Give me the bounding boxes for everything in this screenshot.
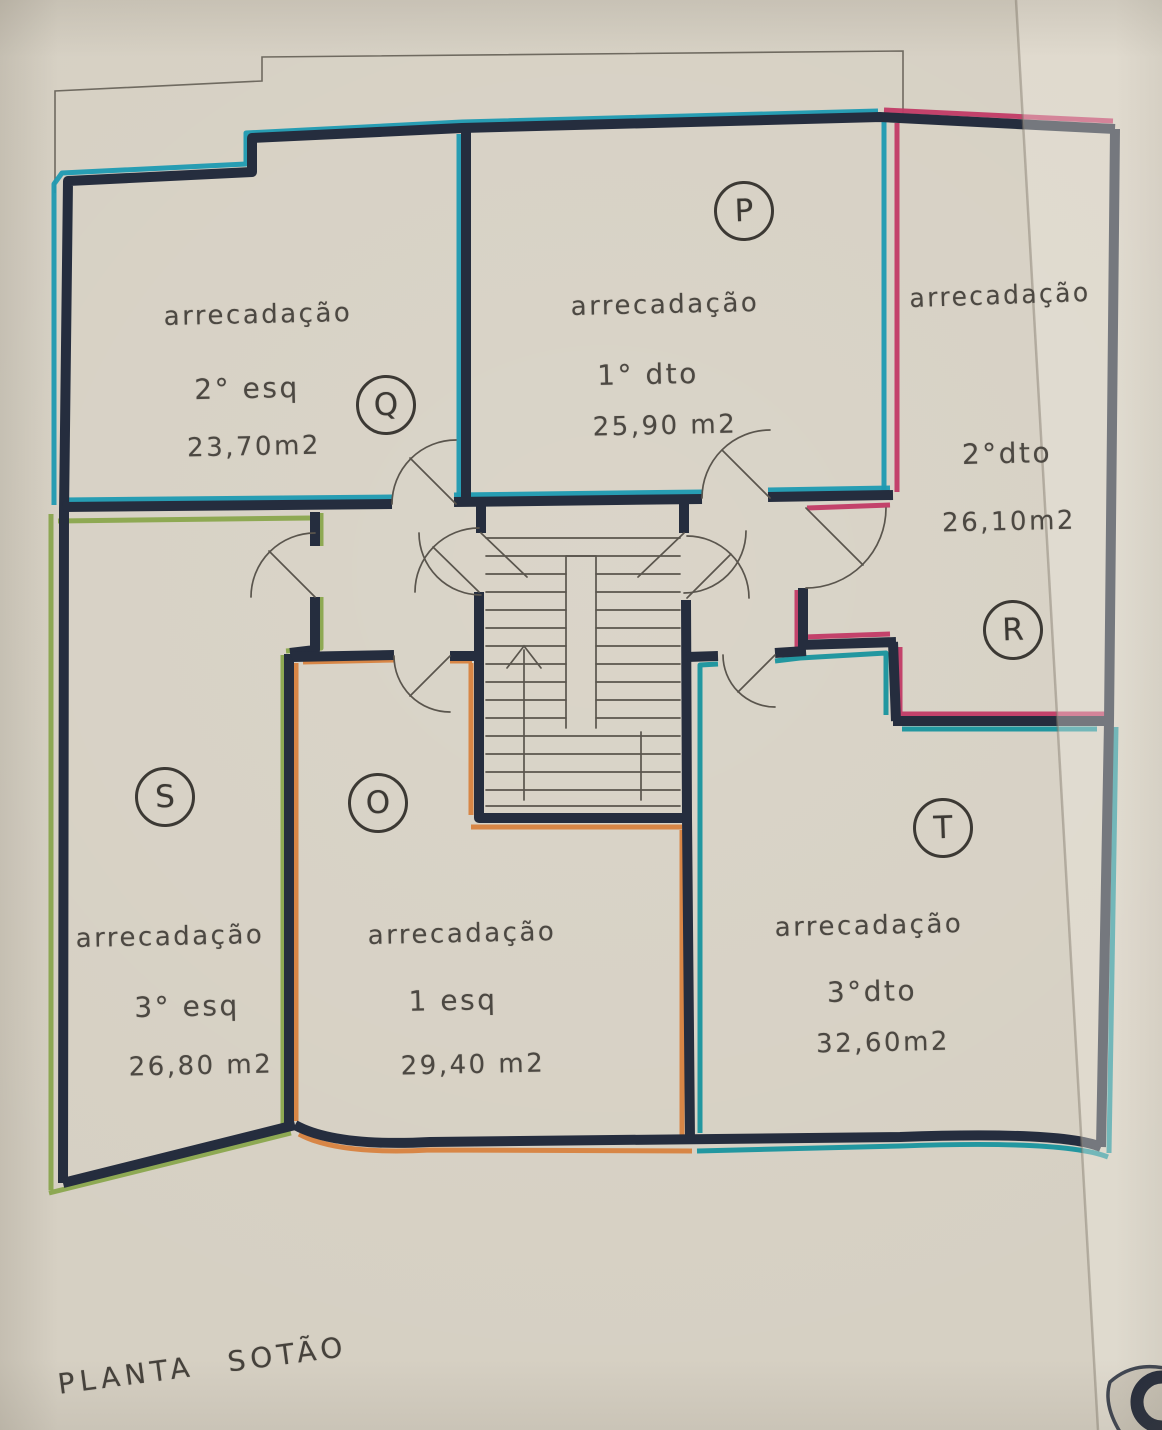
- door-arc-stair-east: [687, 536, 749, 598]
- room-r-unit: 2°dto: [837, 433, 1162, 473]
- door-arc-room-p: [702, 430, 770, 498]
- stamp-logo: [1108, 1367, 1162, 1430]
- door-arc-landing-right: [638, 531, 746, 593]
- floor-plan-page: arrecadação 2° esq 23,70m2 Q arrecadação…: [0, 0, 1162, 1430]
- staircase: [486, 538, 680, 806]
- floor-plan-drawing: [0, 0, 1162, 1430]
- stair-direction-arrow-icon: [507, 646, 541, 800]
- walls: [63, 117, 1115, 1183]
- door-arc-room-t: [723, 655, 775, 707]
- door-arc-room-s: [251, 533, 315, 597]
- door-swings: [251, 430, 886, 712]
- door-arc-room-o: [394, 656, 450, 712]
